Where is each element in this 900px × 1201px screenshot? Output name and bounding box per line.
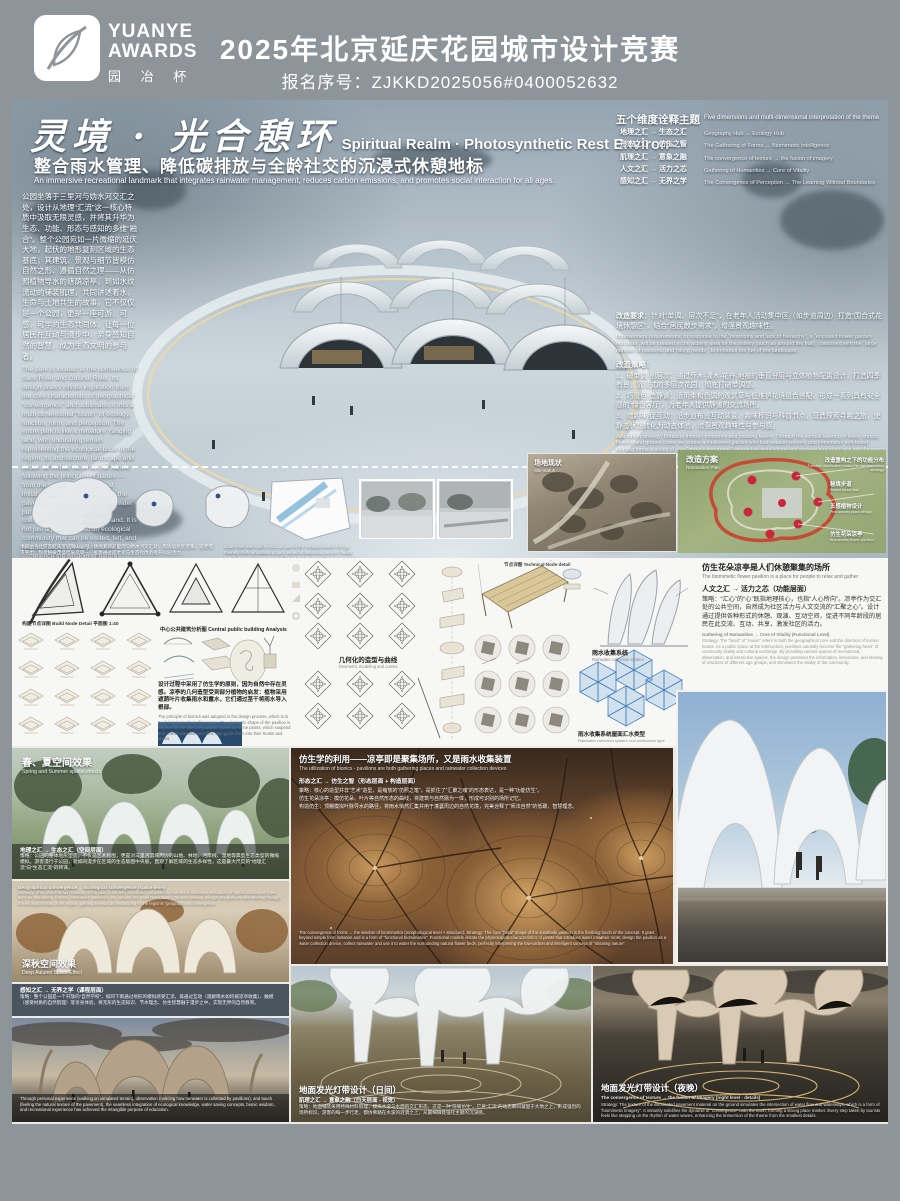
dimension-cn: 地理之汇 → 生态之汇 <box>620 127 704 139</box>
maps-caption-cn: 项目位于北京市延庆区冠帽山公园，场地紧邻三里河与妫水河交汇处，周边居民区密集、适… <box>20 544 216 556</box>
pavilion-title-en: The biomimetic flower pavilion is a plac… <box>702 574 884 580</box>
strategy-head: 改造策略： <box>616 359 882 370</box>
dimension-en: Geography Hub → Ecology Hub <box>704 128 882 140</box>
strategy-3: 3、增趣味·促互动：沿步道布设互动装置、趣味标识与科普节点，营造探索寻趣之旅，使… <box>616 412 882 430</box>
pavilion-text-block: 仿生花朵凉亭是人们休憩聚集的场所 The biomimetic flower p… <box>702 562 884 666</box>
site-photo-2 <box>438 480 512 538</box>
daytime-label: 地面发光灯带设计（日间） <box>299 1084 401 1096</box>
dimension-en: The Gathering of Forms → Biomimetic Inte… <box>704 140 882 152</box>
day-arches-render <box>676 690 888 964</box>
bionics-cn: 设计过程中采用了仿生学的原则，因为自然中存在灵感。凉亭的几何造型受到部分植物的启… <box>158 682 292 712</box>
bionics-en: The principle of bionics was adopted in … <box>158 714 292 741</box>
dimensions-title-cn: 五个维度诠释主题 <box>616 112 700 127</box>
location-maps <box>20 468 520 548</box>
project-subtitle-cn: 整合雨水管理、降低碳排放与全龄社交的沉浸式休憩地标 <box>34 152 484 177</box>
tech-node-label: 节点详图 Technical Node detail <box>504 562 571 568</box>
bionics-use-line3: 仿生花朵凉亭：模仿花朵、叶片等自然形态的曲线，将建筑与自然融为一体，形成可识别的… <box>299 795 667 802</box>
dimension-en: Gathering of Humanities → Core of Vitali… <box>704 165 882 177</box>
dusk-en: Through personal experience (walking on … <box>20 1096 281 1113</box>
dimension-cn: 人文之汇 → 活力之芯 <box>620 164 704 176</box>
pavilion-strategy-en: Strategy: The “heart” of “Huixin” refers… <box>702 638 884 665</box>
requirements-block: 改造要求：针对“单调、层次不足”，在老年人活动集中区（如步道周边）打造“围合式花… <box>616 312 882 461</box>
night-label: 地面发光灯带设计（夜晚） <box>601 1082 703 1094</box>
province-map <box>136 490 173 526</box>
plan-label: 改造方案 Renovation Plan <box>686 454 720 470</box>
req-head-en: Improvement requirements: <box>616 334 682 340</box>
china-map <box>32 478 118 536</box>
spring-summer-render: 春、夏空间效果 Spring and Summer spatial effect… <box>12 748 289 879</box>
spring-label: 春、夏空间效果 Spring and Summer spatial effect… <box>22 754 101 775</box>
dimensions-title-en: Five dimensions and multi-dimensional in… <box>704 115 882 121</box>
req-cn: 针对“单调、层次不足”，在老年人活动集中区（如步道周边）打造“围合式花境休憩区”… <box>616 313 882 330</box>
maps-caption-en: Guan Park was built in 2015 as part of t… <box>224 544 362 558</box>
poster-title: 2025年北京延庆花园城市设计竞赛 <box>0 28 900 68</box>
beijing-map <box>206 486 249 528</box>
plan-annotation-1: 秘境步道Secret forest trail <box>830 480 884 492</box>
bionics-use-line1: 形态之汇 → 仿生之智（形态层面 + 构造层面） <box>299 776 667 785</box>
site-plan-map <box>270 478 350 540</box>
strategy-2: 2、巧设色·造静谧：运用柔和色调的观赏草与低维护花境组合搭配，形成一系列具有安全… <box>616 392 882 410</box>
central-analysis-label: 中心公共建筑分析图 Central public building Analys… <box>160 626 287 633</box>
night-lightstrip-render: 地面发光灯带设计（夜晚） The convergence of texture … <box>593 966 888 1122</box>
dusk-render: Through personal experience (walking on … <box>12 1018 289 1122</box>
bionics-use-line2: 策略：核心的造型并非“艺术”造型，是缩放的“仿照之笔”，是抓住了“汇聚之魂”的形… <box>299 787 667 794</box>
site-photo-1 <box>360 480 434 538</box>
registration-number: 报名序号：ZJKKD2025056#0400052632 <box>0 68 900 93</box>
node-detail-label: 构建节点详图 Build Node Detail 平面图 1:40 <box>22 620 118 627</box>
hero-winter-render: 灵境 · 光合憩环Spiritual Realm · Photosyntheti… <box>12 100 888 558</box>
autumn-en-caption: Geographical convergence → Ecological co… <box>18 885 283 906</box>
dimensions-cn-list: 地理之汇 → 生态之汇 形态之汇 → 仿生之智 肌理之汇 → 意象之融 人文之汇… <box>620 127 704 188</box>
bionics-use-title-en: The utilization of bionics - pavilions a… <box>299 766 667 772</box>
req-head-cn: 改造要求： <box>616 313 651 320</box>
pavilion-title-cn: 仿生花朵凉亭是人们休憩聚集的场所 <box>702 562 884 573</box>
bionics-text: 设计过程中采用了仿生学的原则，因为自然中存在灵感。凉亭的几何造型受到部分植物的启… <box>158 682 292 741</box>
plan-annotation-3: 仿生花朵凉亭Biomimetic flower pavilion <box>830 530 884 542</box>
dimension-cn: 形态之汇 → 仿生之智 <box>620 139 704 151</box>
intro-cn: 公园坐落于三里河与妫水河交汇之处，设计从地理“汇流”这一核心特质中汲取无限灵感，… <box>22 192 138 362</box>
dimension-cn: 感知之汇 → 无界之学 <box>620 176 704 188</box>
perception-head: 感知之汇 → 无界之学（课程层面） <box>20 986 281 994</box>
plan-annotation-2: 五感植物设计Five senses plant design <box>830 502 884 514</box>
pavilion-strategy-cn: 策略：“汇心”的“心”既指地理核心，也指“人心所向”。凉亭作为交汇处的公共空间，… <box>702 596 884 629</box>
daytime-body: 策略：地面铺装采用特殊材料肌理，模拟水波与水面的交汇形态，这是一种“隐喻仿生”，… <box>299 1104 583 1116</box>
competition-poster: { "colors": {"header_bg":"#8d949a","acce… <box>0 0 900 1201</box>
dusk-caption: Through personal experience (walking on … <box>12 1094 289 1122</box>
bionics-use-en: The convergence of forms → the wisdom of… <box>299 930 667 946</box>
night-en-body: Strategy: The texture of the illuminated… <box>601 1102 881 1119</box>
perception-band: 感知之汇 → 无界之学（课程层面） 策略：整个公园是一个开放的“自然学校”，如同… <box>12 984 289 1016</box>
canopy-closeup-render: 仿生学的利用——凉亭即是聚集场所，又是雨水收集装置 The utilizatio… <box>291 748 673 964</box>
rainwater-label: 雨水收集系统 Rainwater collection system <box>592 648 692 662</box>
perception-body: 策略：整个公园是一个开放的“自然学校”，如同下雨通过地形的模拟感受汇流，再通过互… <box>20 994 281 1006</box>
dimension-en: The Convergence of Perception → The Lear… <box>704 177 882 189</box>
plan-annotation-0: 改造重构之下的功能分布Function distribution under t… <box>796 456 884 472</box>
dimension-cn: 肌理之汇 → 意象之融 <box>620 152 704 164</box>
bionics-use-line4: 构造仿生：顶棚模拟叶脉导水的路径，将雨水悄然汇集并用于灌溉周边的自然花境，完美诠… <box>299 803 667 810</box>
night-en-head: The convergence of texture → the fusion … <box>601 1095 760 1100</box>
autumn-render: Geographical convergence → Ecological co… <box>12 881 289 982</box>
daytime-line: 肌理之汇 → 意象之融（白天层面 - 视觉） <box>299 1096 398 1104</box>
dimension-en: The convergence of texture → the fusion … <box>704 153 882 165</box>
bionics-use-text: 仿生学的利用——凉亭即是聚集场所，又是雨水收集装置 The utilizatio… <box>299 753 667 810</box>
project-subtitle-en: An immersive recreational landmark that … <box>34 176 594 185</box>
existing-site-label: 场地现状 Site status <box>534 458 562 473</box>
pavilion-line: 人文之汇 → 活力之芯（功能层面） <box>702 584 884 594</box>
pavilion-en-head: Gathering of Humanities → Core of Vitali… <box>702 632 884 637</box>
spring-head: 地理之汇 → 生态之汇（空间层面） <box>20 846 281 854</box>
autumn-label: 深秋空间效果 Deep Autumn Space Effect <box>22 957 82 976</box>
spring-body: 策略：公园的整体地形塑造，不仅是艺术构图，更是对三里河流域周边的山地、林地、河岸… <box>20 854 281 873</box>
bionics-use-title-cn: 仿生学的利用——凉亭即是聚集场所，又是雨水收集装置 <box>299 753 667 765</box>
day-arches-art <box>678 692 886 962</box>
dimensions-en-list: Geography Hub → Ecology Hub The Gatherin… <box>704 128 882 189</box>
daytime-lightstrip-render: 地面发光灯带设计（日间） 肌理之汇 → 意象之融（白天层面 - 视觉） 策略：地… <box>291 966 591 1122</box>
renovation-plan: 改造方案 Renovation Plan 改造重构之下的功能分布Function… <box>678 450 886 553</box>
geometry-label: 几何化的造型与曲线 Geometric modeling and curves <box>308 654 428 669</box>
existing-site-photo: 场地现状 Site status <box>527 453 677 552</box>
header-bar: YUANYE AWARDS 园 冶 杯 2025年北京延庆花园城市设计竞赛 报名… <box>0 0 900 100</box>
strategy-1: 1、破单调·创层次：通过乔木-灌木-花卉-地被的垂直分层与立体植物配置设计，打造… <box>616 372 882 390</box>
spring-caption: 地理之汇 → 生态之汇（空间层面） 策略：公园的整体地形塑造，不仅是艺术构图，更… <box>12 844 289 879</box>
